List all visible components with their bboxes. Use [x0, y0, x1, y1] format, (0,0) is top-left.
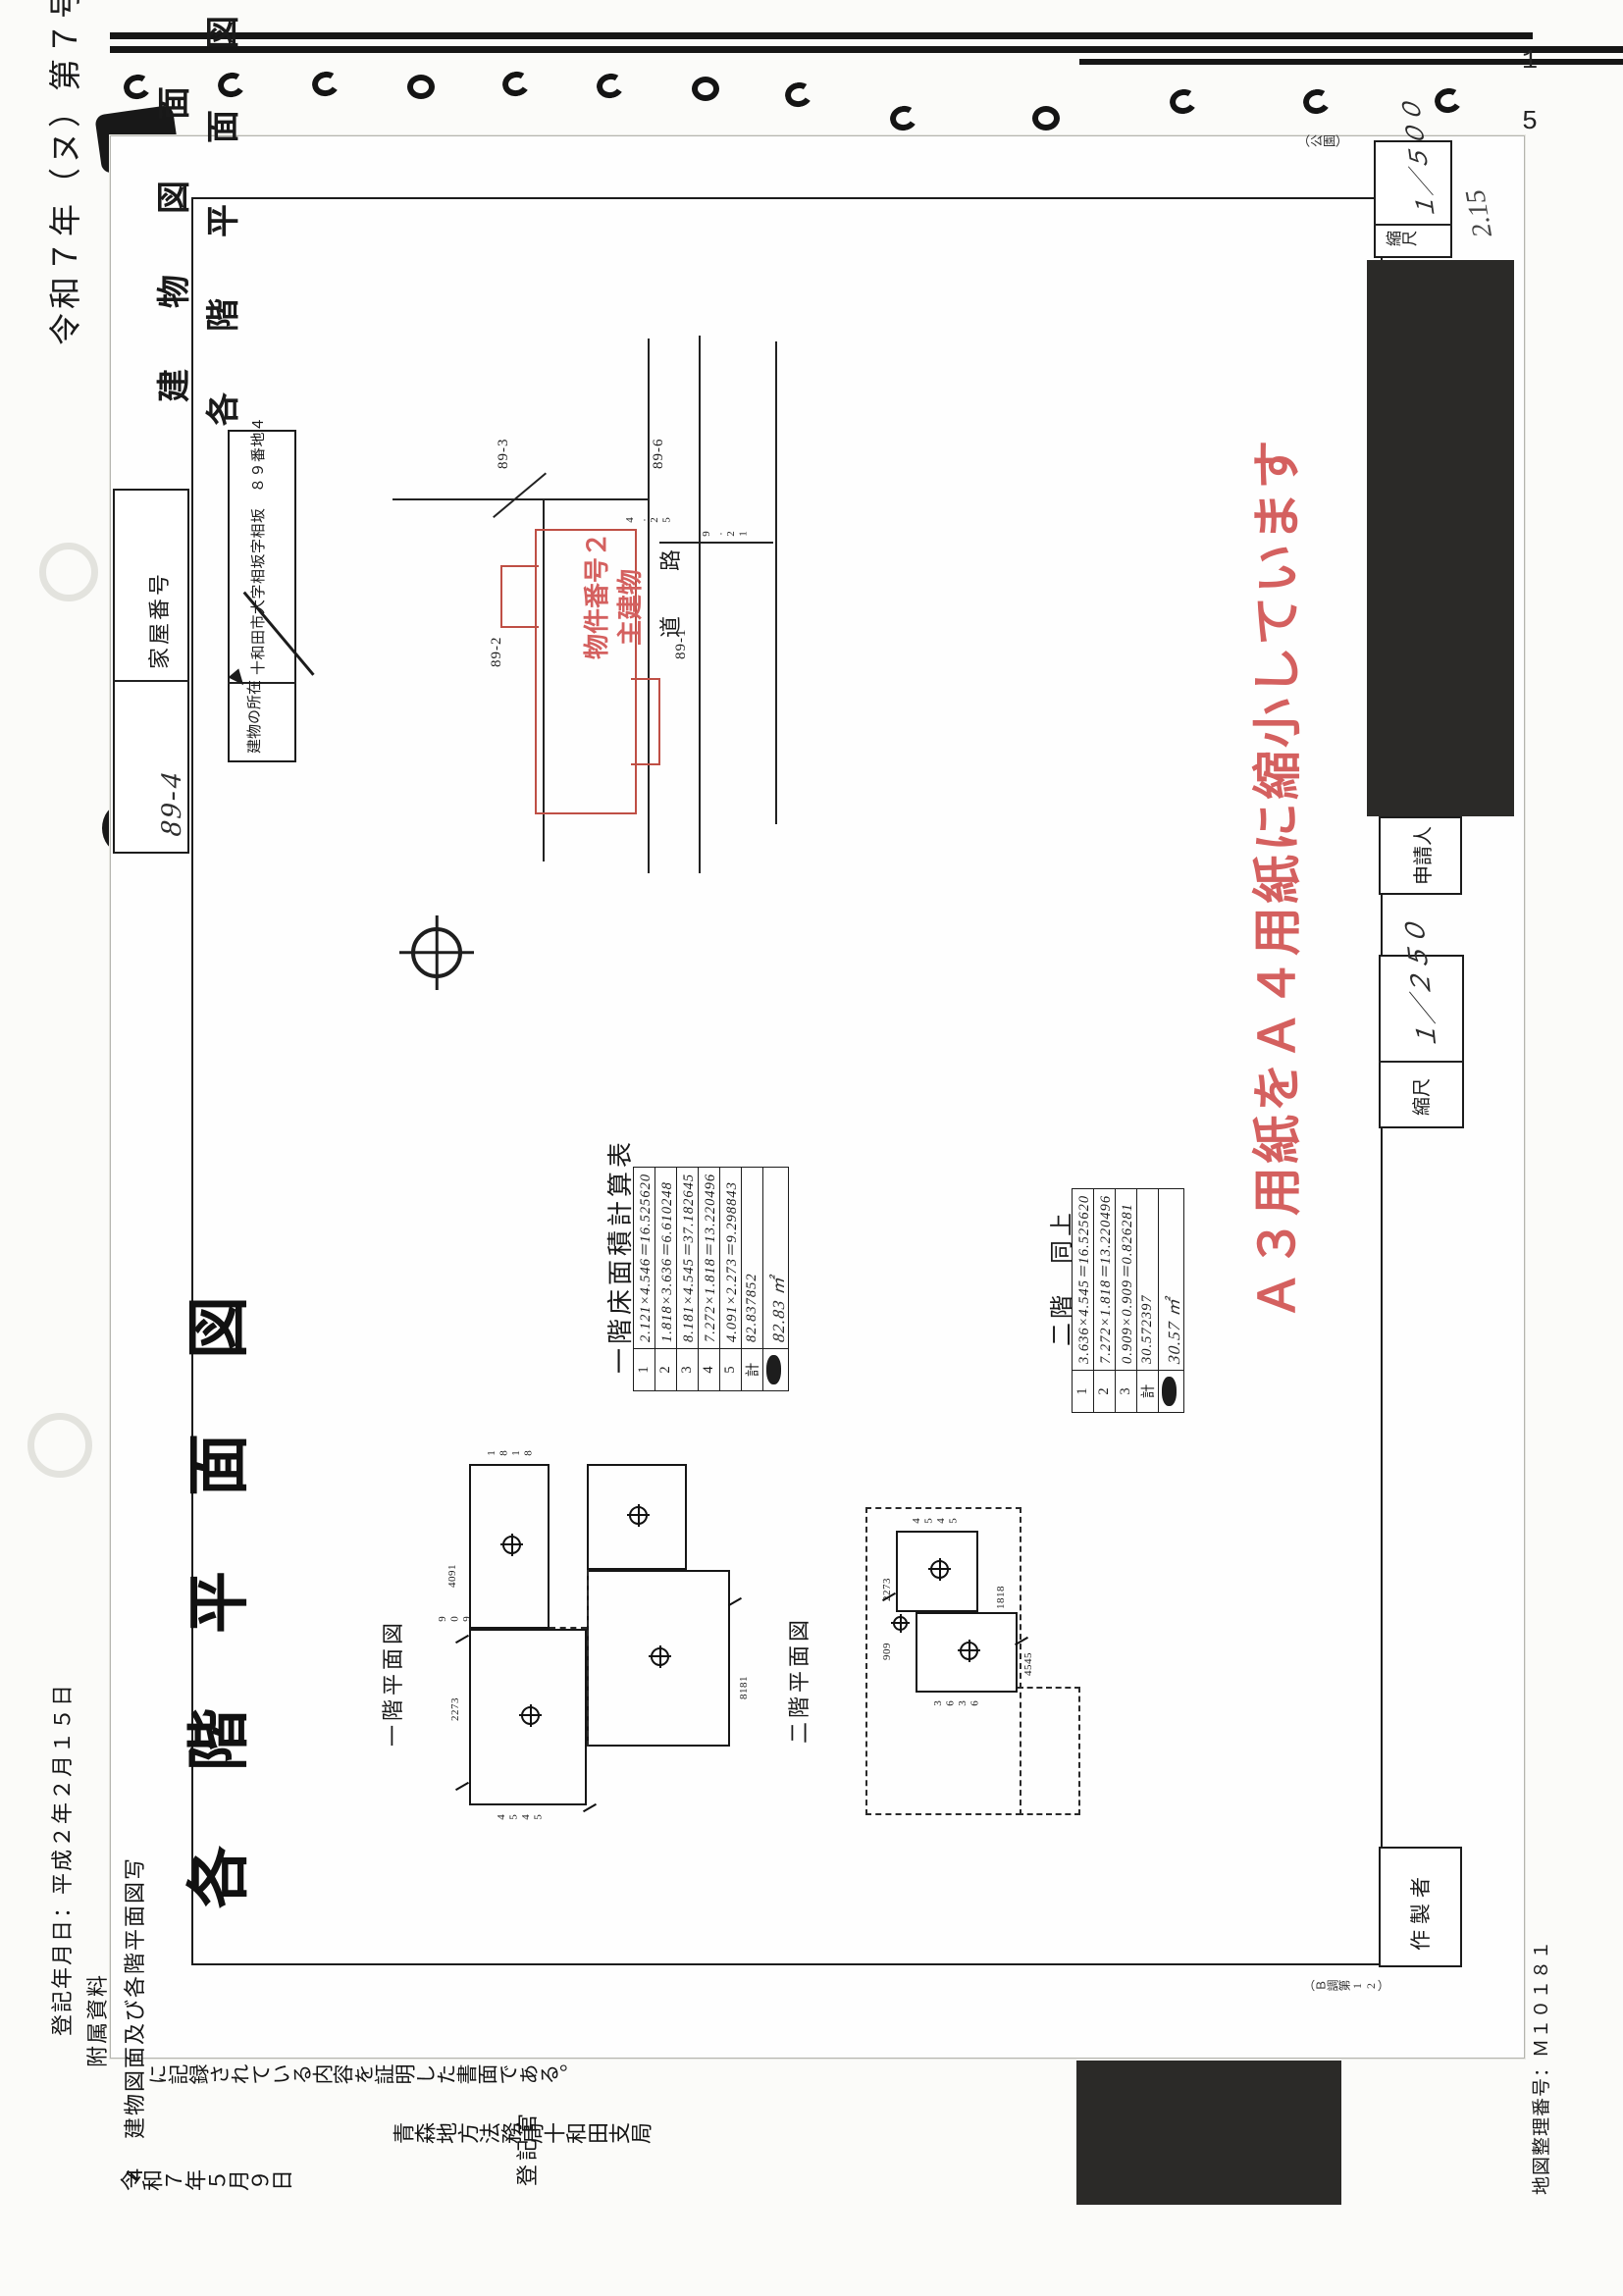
first-floor-partition	[587, 1570, 589, 1747]
row-no: 1	[634, 1349, 655, 1391]
row-calc: 30.572397	[1137, 1188, 1159, 1370]
redaction-bar-applicant	[1367, 260, 1514, 816]
scale-box-left-divider	[1379, 1061, 1464, 1063]
road-edge-lower	[699, 336, 701, 873]
lot-number: 89-3	[496, 439, 512, 470]
plan-dimension: 4545	[911, 1515, 960, 1527]
form-title-line2: 各 階 平 面 図	[196, 2, 244, 426]
section-heading: 各 階 平 面 図	[169, 1267, 259, 1908]
cert-issue-date: 令和７年５月９日	[120, 2166, 292, 2198]
map-number: 地図整理番号：Ｍ１０１８１	[1527, 1940, 1553, 2195]
road-char: 路	[654, 549, 685, 571]
location-label: 建物の所在	[243, 680, 264, 754]
row-calc: 8.181×4.545＝37.182645	[677, 1167, 699, 1348]
post-mark	[930, 1560, 949, 1579]
row-no: 3	[677, 1349, 699, 1391]
row-calc: 0.909×0.909＝0.826281	[1116, 1188, 1137, 1370]
row-no: 計	[1137, 1371, 1159, 1413]
first-floor-table-heading: 一階床面積計算表	[601, 1138, 637, 1374]
row-calc: 3.636×4.545＝16.525620	[1073, 1188, 1094, 1370]
scale-label-right: 縮尺	[1386, 230, 1417, 253]
row-no: 3	[1116, 1371, 1137, 1413]
reduction-notice: Ａ３用紙をＡ４用紙に縮小しています	[1238, 438, 1309, 1321]
row-no: 1	[1073, 1371, 1094, 1413]
road-edge-far	[775, 341, 777, 824]
correction-stamp	[766, 1355, 781, 1384]
building-outline-step2	[631, 678, 660, 765]
plan-dimension: 4091	[446, 1564, 458, 1588]
row-calc: 30.57 ㎡	[1159, 1187, 1184, 1372]
plan-dimension: 8181	[738, 1676, 750, 1699]
sheet-edge-note: （公園）	[1297, 132, 1348, 151]
road-edge-upper	[648, 339, 650, 873]
row-calc: 1.818×3.636＝6.610248	[655, 1167, 677, 1348]
house-number-divider	[113, 680, 189, 682]
scale-box-right-divider	[1374, 224, 1452, 226]
row-stamp-cell	[1159, 1371, 1184, 1413]
building-label-line1: 物件番号２	[577, 532, 613, 659]
row-calc: 7.272×1.818＝13.220496	[1094, 1188, 1116, 1370]
scanned-registry-document: { "page": { "number": "1 5" }, "case_lab…	[0, 0, 1623, 2296]
dimension-arrow	[659, 542, 773, 544]
house-number-value: 89-4	[155, 768, 188, 838]
plan-dimension: 4545	[1022, 1652, 1034, 1676]
second-floor-footprint-step	[1018, 1687, 1080, 1815]
plan-dimension: 1818	[995, 1586, 1007, 1609]
compass-mark	[411, 927, 462, 978]
cert-attachment-label: 附属資料	[80, 1973, 112, 2067]
plan-dimension: 909	[881, 1643, 893, 1660]
cert-registrar-label: 登記官	[510, 2110, 542, 2186]
preparer-label: 作製者	[1405, 1871, 1435, 1951]
row-calc: 82.83 ㎡	[763, 1166, 789, 1350]
plan-dimension: 1818	[486, 1447, 535, 1459]
building-outline-step	[500, 565, 539, 628]
plan-dimension: 4545	[496, 1811, 545, 1823]
row-stamp-cell	[763, 1349, 789, 1391]
row-no: 4	[699, 1349, 720, 1391]
row-calc: 2.121×4.546＝16.525620	[634, 1167, 655, 1348]
post-mark	[521, 1706, 540, 1725]
first-floor-area-table: 12.121×4.546＝16.525620 21.818×3.636＝6.61…	[633, 1167, 789, 1391]
rotated-landscape-canvas: 令和７年（ヌ）第７号 建 物 図 面 各 階 平 面 図 家屋番号 89-4 建…	[0, 0, 1623, 2296]
scale-label-left: 縮尺	[1407, 1078, 1434, 1116]
post-mark	[502, 1536, 521, 1554]
cert-statement: に記録されている内容を証明した書面である。	[147, 2061, 580, 2090]
building-label-line2: 主建物	[610, 569, 647, 646]
second-floor-area-table: 13.636×4.545＝16.525620 27.272×1.818＝13.2…	[1072, 1188, 1184, 1413]
applicant-label: 申請人	[1407, 826, 1436, 885]
row-no: 2	[1094, 1371, 1116, 1413]
post-mark	[629, 1506, 648, 1525]
form-title-line1: 建 物 図 面	[147, 73, 195, 402]
row-no: 計	[742, 1349, 763, 1391]
post-mark	[893, 1616, 908, 1631]
house-number-label: 家屋番号	[142, 571, 174, 669]
redaction-bar-registrar	[1076, 2061, 1341, 2205]
plan-dimension: 909	[437, 1613, 474, 1625]
plan-dimension: 3636	[932, 1697, 981, 1709]
location-value: 十和田市大字相坂字相坂 ８９番地４	[247, 416, 268, 675]
post-mark	[651, 1647, 669, 1666]
first-floor-plan-label: 一階平面図	[376, 1619, 407, 1747]
row-calc: 7.272×1.818＝13.220496	[699, 1167, 720, 1348]
cert-attachment-item: ４ 建物図面及び各階平面図写	[118, 1856, 149, 2186]
row-calc: 4.091×2.273＝9.298843	[720, 1167, 742, 1348]
lot-number: 89-6	[651, 439, 667, 470]
row-no: 2	[655, 1349, 677, 1391]
row-no: 5	[720, 1349, 742, 1391]
first-floor-partition	[550, 1627, 587, 1629]
cert-reg-date: 登記年月日：平成２年２月１５日	[45, 1683, 77, 2036]
plan-dimension: 2273	[449, 1697, 461, 1721]
parcel-boundary-north	[393, 498, 650, 500]
post-mark	[960, 1642, 978, 1660]
case-number-stamp: 令和７年（ヌ）第７号	[39, 0, 86, 345]
row-calc: 82.837852	[742, 1167, 763, 1348]
site-dimension: 9.21	[701, 528, 750, 540]
second-floor-plan-label: 二階平面図	[782, 1616, 813, 1744]
site-dimension: 4.25	[624, 514, 673, 526]
lot-number: 89-2	[489, 637, 505, 668]
correction-stamp	[1162, 1377, 1177, 1406]
survey-note: （Ｂ調第12）	[1303, 1977, 1389, 1994]
lot-number: 89-1	[673, 629, 690, 660]
